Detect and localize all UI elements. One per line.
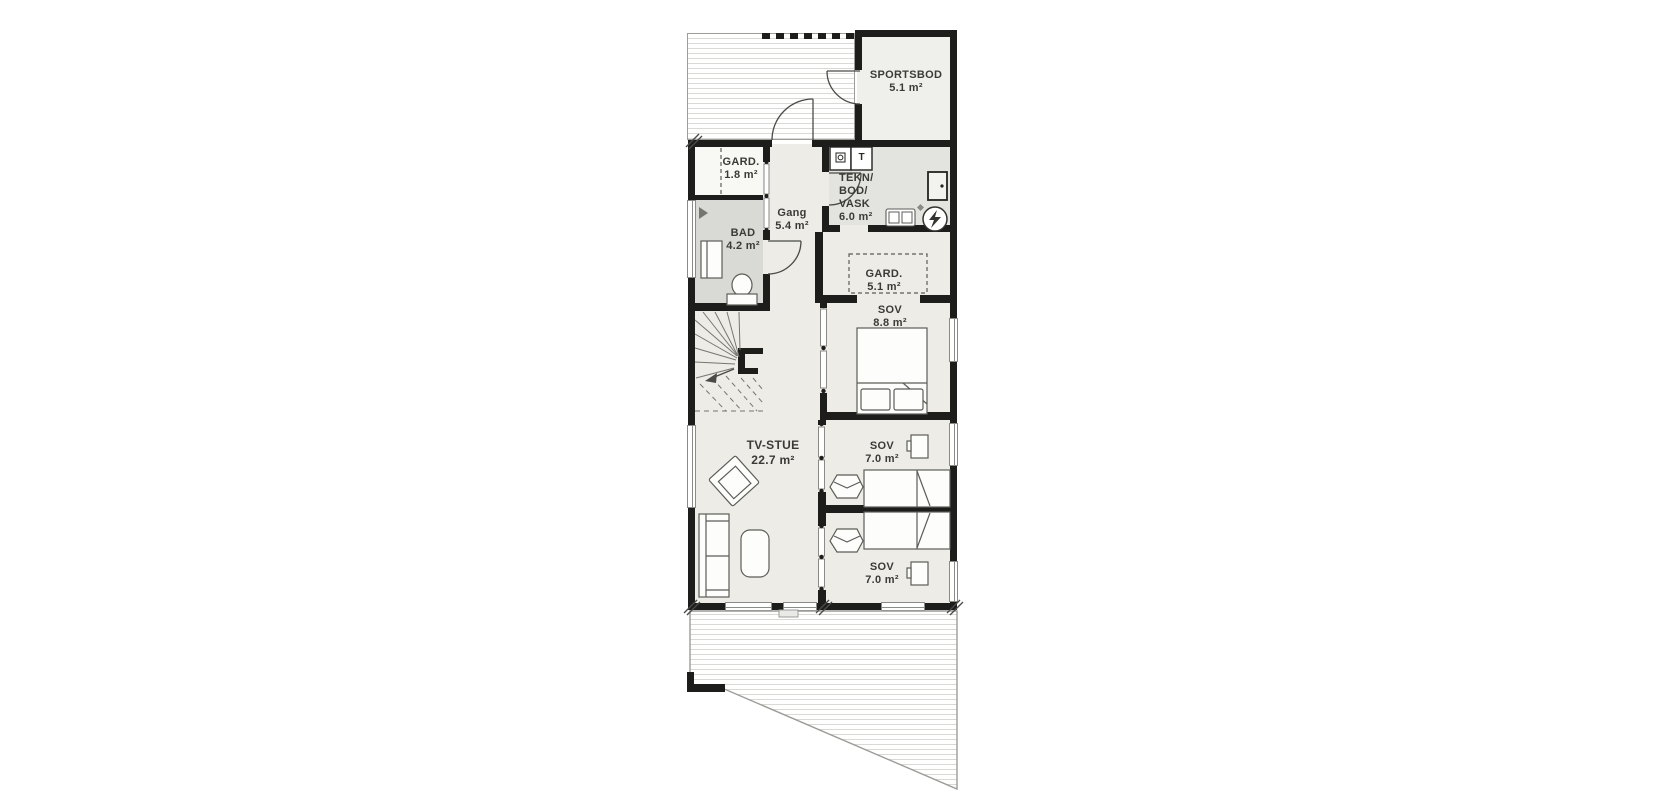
room-area: 8.8 m² [873, 317, 907, 330]
room-label-gang: Gang 5.4 m² [775, 207, 809, 233]
window [687, 425, 696, 508]
room-label-bad: BAD 4.2 m² [726, 227, 760, 253]
floor-plan-canvas: T [0, 0, 1670, 800]
wall [812, 140, 957, 147]
wall [950, 147, 957, 318]
room-area: 4.2 m² [726, 240, 760, 253]
room-name: SOV [865, 440, 899, 453]
room-name: TV-STUE [747, 438, 800, 453]
wall [855, 30, 862, 70]
window [949, 561, 958, 602]
wall [950, 30, 957, 147]
terrace-door [783, 602, 817, 611]
wall [688, 140, 695, 200]
room-area: 7.0 m² [865, 453, 899, 466]
room-name: Gang [775, 207, 809, 220]
room-area: 6.0 m² [839, 211, 874, 224]
door-step [779, 610, 798, 617]
room-name: SOV [865, 561, 899, 574]
room-area: 7.0 m² [865, 574, 899, 587]
wall [815, 232, 823, 303]
room-label-sov-1: SOV 8.8 m² [873, 304, 907, 330]
wall [688, 603, 725, 610]
room-label-gard-entry: GARD. 1.8 m² [723, 156, 760, 182]
room-name: VASK [839, 198, 874, 211]
room-area: 22.7 m² [747, 453, 800, 468]
room-area: 5.1 m² [870, 82, 942, 95]
room-label-tv-stue: TV-STUE 22.7 m² [747, 438, 800, 468]
room-name: SPORTSBOD [870, 69, 942, 82]
wall [688, 508, 695, 610]
wall [815, 295, 857, 303]
room-area: 5.4 m² [775, 220, 809, 233]
room-name: TEKN/ [839, 172, 874, 185]
window [949, 423, 958, 466]
deck-bottom [687, 610, 957, 789]
wall [763, 230, 770, 240]
wall [920, 295, 957, 303]
wall [868, 225, 957, 232]
wall [818, 420, 826, 425]
wall [950, 466, 957, 561]
wall [818, 505, 957, 513]
window [949, 318, 958, 362]
wall [817, 603, 881, 610]
wall [822, 206, 829, 225]
deck-top-dashed-edge [762, 33, 855, 39]
dryer-box-label: T [851, 152, 872, 163]
wall [822, 225, 840, 232]
wall [822, 147, 829, 172]
room-label-tekn: TEKN/ BOD/ VASK 6.0 m² [839, 172, 874, 224]
window [881, 602, 925, 611]
wall [695, 195, 763, 200]
room-label-sportsbod: SPORTSBOD 5.1 m² [870, 69, 942, 95]
deck-top [687, 33, 855, 140]
wall [925, 603, 957, 610]
window [725, 602, 772, 611]
room-label-gard-sov: GARD. 5.1 m² [866, 268, 903, 294]
wall [738, 368, 758, 374]
room-name: BOD/ [839, 185, 874, 198]
wall [763, 140, 770, 162]
room-label-sov-2: SOV 7.0 m² [865, 440, 899, 466]
window [687, 200, 696, 278]
wall [820, 393, 827, 412]
wall [820, 412, 957, 420]
room-area: 5.1 m² [866, 281, 903, 294]
wall [820, 303, 827, 308]
wall [855, 30, 957, 37]
wall [688, 278, 695, 425]
wall [772, 603, 783, 610]
room-name: GARD. [866, 268, 903, 281]
room-area: 1.8 m² [723, 169, 760, 182]
wall [688, 140, 772, 147]
room-name: BAD [726, 227, 760, 240]
wall [688, 303, 770, 311]
room-label-sov-3: SOV 7.0 m² [865, 561, 899, 587]
room-name: GARD. [723, 156, 760, 169]
room-name: SOV [873, 304, 907, 317]
wall [818, 590, 826, 603]
